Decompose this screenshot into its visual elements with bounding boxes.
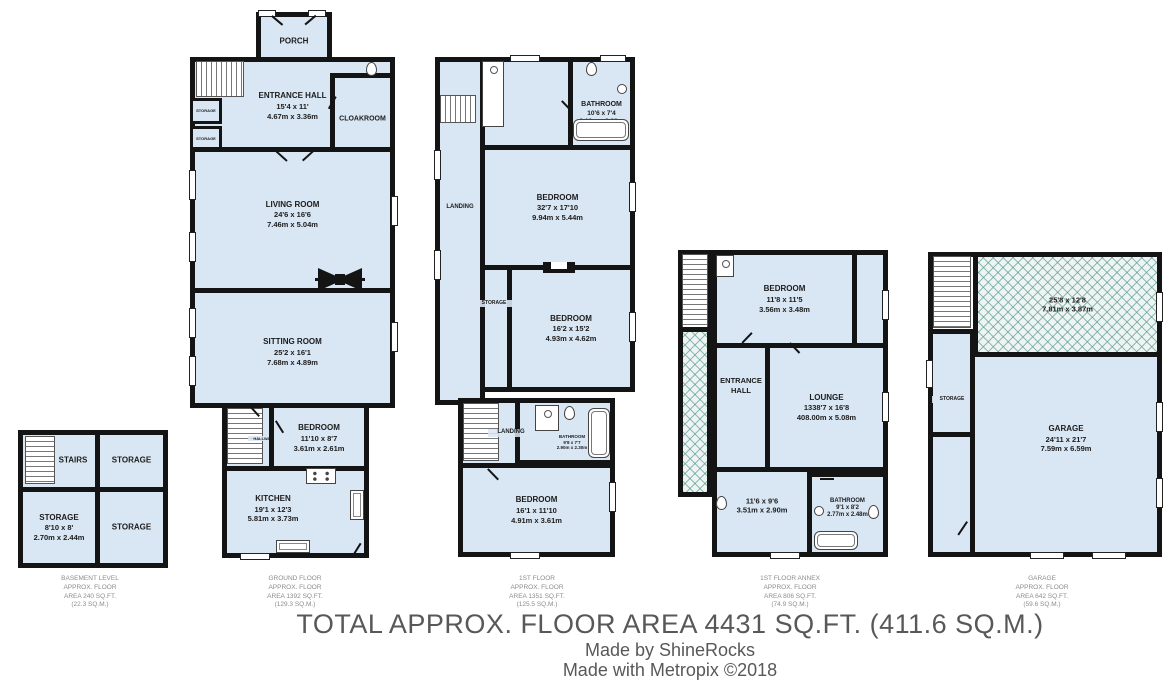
room-dims-ft: 11'8 x 11'5 (717, 295, 852, 305)
window-marker (391, 322, 398, 352)
gr-garage: GARAGE 24'11 x 21'7 7.59m x 6.59m (970, 352, 1162, 557)
window-marker (882, 392, 889, 422)
ff-storage-label: STORAGE (470, 300, 518, 307)
room-name: BATHROOM (812, 497, 883, 505)
window-marker (240, 553, 270, 560)
caption-line: APPROX. FLOOR (477, 584, 597, 593)
window-marker (510, 55, 540, 62)
room-dims-m: 408.00m x 5.08m (770, 413, 883, 423)
room-dims-ft: 25'8 x 12'8 (978, 295, 1157, 305)
room-name: BATHROOM (573, 100, 630, 109)
window-marker (308, 10, 326, 17)
room-dims-m: 3.51m x 2.90m (717, 506, 807, 516)
room-dims-m: 4.91m x 3.61m (463, 515, 610, 525)
total-floor-area-text: TOTAL APPROX. FLOOR AREA 4431 SQ.FT. (41… (170, 609, 1170, 640)
room-dims-ft: 16'2 x 15'2 (512, 324, 630, 334)
caption-line: APPROX. FLOOR (982, 584, 1102, 593)
window-marker (189, 308, 196, 338)
room-dims-m: 5.81m x 3.73m (182, 514, 364, 524)
gf-porch: PORCH (256, 12, 332, 62)
ax-entrance-hall: ENTRANCE HALL (712, 343, 770, 472)
caption-line: AREA 240 SQ.FT. (30, 593, 150, 602)
room-dims-ft: 1338'7 x 16'8 (770, 403, 883, 413)
room-dims-m: 7.81m x 3.87m (978, 305, 1157, 315)
toilet-icon (366, 62, 377, 76)
stove-icon (306, 468, 336, 484)
window-marker (1092, 552, 1126, 559)
room-dims-ft: 24'11 x 21'7 (975, 435, 1157, 445)
room-dims-m: 7.68m x 4.89m (195, 358, 390, 368)
ff-bedroom-big: BEDROOM 32'7 x 17'10 9.94m x 5.44m (480, 145, 635, 270)
window-marker (510, 552, 540, 559)
caption-line: AREA 806 SQ.FT. (730, 593, 850, 602)
room-dims-ft: 11'6 x 9'6 (717, 496, 807, 506)
room-name: BEDROOM (717, 284, 852, 295)
shower-icon (482, 61, 504, 127)
ax-room-bottom-left: 11'6 x 9'6 3.51m x 2.90m (712, 467, 812, 557)
bathtub-icon (573, 119, 629, 141)
window-marker (629, 312, 636, 342)
stairs-icon (682, 254, 708, 328)
gr-loft-hatched-area: 25'8 x 12'8 7.81m x 3.87m (973, 252, 1162, 357)
room-name: BEDROOM (274, 423, 364, 434)
room-name: ENTRANCE HALL (717, 376, 765, 396)
window-marker (926, 360, 933, 388)
caption-line: APPROX. FLOOR (235, 584, 355, 593)
window-marker (770, 552, 800, 559)
caption-line: AREA 1351 SQ.FT. (477, 593, 597, 602)
chimney-breast (543, 262, 575, 273)
caption-line: AREA 642 SQ.FT. (982, 593, 1102, 602)
room-dims-m: 7.59m x 6.59m (975, 444, 1157, 454)
stairs-icon (933, 256, 971, 328)
room-name: BEDROOM (463, 495, 610, 506)
room-name: SITTING ROOM (195, 337, 390, 348)
room-name: LOUNGE (770, 392, 883, 403)
room-dims-m: 3.61m x 2.61m (274, 443, 364, 453)
shower-icon (535, 405, 559, 431)
gf-sitting-room: SITTING ROOM 25'2 x 16'1 7.68m x 4.89m (190, 288, 395, 408)
basement-storage-bottom-left: STORAGE 8'10 x 8' 2.70m x 2.44m (18, 487, 100, 568)
ax-balcony-hatched-area (678, 327, 712, 497)
made-by-text: Made by ShineRocks (170, 640, 1170, 661)
toilet-icon (564, 406, 575, 420)
gf-bedroom: BEDROOM 11'10 x 8'7 3.61m x 2.61m (269, 403, 369, 473)
ax-lounge: LOUNGE 1338'7 x 16'8 408.00m x 5.08m (765, 343, 888, 472)
gr-storage (928, 329, 975, 437)
room-dims-ft: 32'7 x 17'10 (485, 203, 630, 213)
window-marker (391, 196, 398, 226)
room-dims-ft: 10'6 x 7'4 (573, 110, 630, 118)
sink-icon (814, 506, 824, 516)
ff-bedroom-mid: BEDROOM 16'2 x 15'2 4.93m x 4.62m (507, 265, 635, 392)
window-marker (882, 290, 889, 320)
gr-lower-left-cell (928, 432, 975, 557)
room-name: KITCHEN (182, 494, 364, 505)
room-name: GARAGE (975, 424, 1157, 435)
toilet-icon (868, 505, 879, 519)
room-name: STORAGE (23, 512, 95, 523)
floorplan-canvas: STAIRS STORAGE STORAGE 8'10 x 8' 2.70m x… (0, 0, 1170, 683)
caption-line: APPROX. FLOOR (30, 584, 150, 593)
room-name: STAIRS (51, 456, 95, 467)
ff-landing-label: LANDING (433, 204, 487, 212)
stairs-icon (25, 436, 55, 484)
caption-ground-floor: GROUND FLOOR APPROX. FLOOR AREA 1392 SQ.… (235, 575, 355, 610)
room-dims-ft: 11'10 x 8'7 (274, 434, 364, 444)
window-marker (629, 182, 636, 212)
room-name: CLOAKROOM (335, 115, 390, 124)
caption-first-floor: 1ST FLOOR APPROX. FLOOR AREA 1351 SQ.FT.… (477, 575, 597, 610)
basement-storage-top-right: STORAGE (95, 430, 168, 492)
caption-line: 1ST FLOOR (477, 575, 597, 584)
room-name: PORCH (261, 36, 327, 47)
door-marker (820, 478, 834, 480)
room-dims-ft: 19'1 x 12'3 (182, 504, 364, 514)
gf-storage-closet-1: STORAGE (190, 98, 222, 124)
caption-line: GARAGE (982, 575, 1102, 584)
window-marker (189, 232, 196, 262)
ff-landing2-label: LANDING (488, 429, 534, 437)
window-marker (1030, 552, 1064, 559)
shower-icon (716, 255, 734, 277)
caption-line: AREA 1392 SQ.FT. (235, 593, 355, 602)
room-name: BEDROOM (485, 192, 630, 203)
room-dims-m: 7.46m x 5.04m (195, 220, 390, 230)
toilet-icon (716, 496, 727, 510)
room-dims-m: 9.94m x 5.44m (485, 213, 630, 223)
caption-line: APPROX. FLOOR (730, 584, 850, 593)
window-marker (1156, 292, 1163, 322)
kitchen-sink-icon (350, 490, 364, 520)
room-name: LIVING ROOM (195, 199, 390, 210)
gf-cloakroom: CLOAKROOM (330, 73, 395, 152)
gr-storage-label: STORAGE (932, 396, 972, 403)
ff-bedroom-bottom: BEDROOM 16'1 x 11'10 4.91m x 3.61m (458, 463, 615, 557)
toilet-icon (586, 62, 597, 76)
caption-line: 1ST FLOOR ANNEX (730, 575, 850, 584)
window-marker (1156, 478, 1163, 508)
window-marker (434, 150, 441, 180)
room-dims-ft: 8'10 x 8' (23, 523, 95, 533)
caption-basement: BASEMENT LEVEL APPROX. FLOOR AREA 240 SQ… (30, 575, 150, 610)
room-dims-ft: 24'6 x 16'6 (195, 210, 390, 220)
room-dims-m: 2.90m x 2.30m (546, 445, 598, 451)
room-dims-ft: 25'2 x 16'1 (195, 348, 390, 358)
room-name: STORAGE (193, 108, 219, 113)
window-marker (1156, 402, 1163, 432)
room-name: BEDROOM (512, 313, 630, 324)
room-name: STORAGE (193, 136, 219, 141)
window-marker (434, 250, 441, 280)
room-dims-ft: 16'1 x 11'10 (463, 506, 610, 516)
room-dims-m: 4.93m x 4.62m (512, 334, 630, 344)
caption-annex: 1ST FLOOR ANNEX APPROX. FLOOR AREA 806 S… (730, 575, 850, 610)
fireplace-icon (315, 266, 365, 294)
ff-bathroom-small-label: BATHROOM 9'8 x 7'7 2.90m x 2.30m (546, 434, 598, 451)
window-marker (609, 482, 616, 512)
stairs-icon (196, 61, 244, 97)
made-with-text: Made with Metropix ©2018 (170, 660, 1170, 681)
bathtub-icon (814, 531, 858, 550)
window-marker (189, 356, 196, 386)
caption-line: (22.3 SQ.M.) (30, 601, 150, 610)
kitchen-sink-icon (276, 540, 310, 553)
caption-garage: GARAGE APPROX. FLOOR AREA 642 SQ.FT. (59… (982, 575, 1102, 610)
caption-line: GROUND FLOOR (235, 575, 355, 584)
basement-storage-bottom-right: STORAGE (95, 487, 168, 568)
sink-icon (617, 84, 627, 94)
window-marker (600, 55, 626, 62)
window-marker (189, 170, 196, 200)
room-dims-m: 2.70m x 2.44m (23, 533, 95, 543)
room-dims-m: 3.56m x 3.48m (717, 304, 852, 314)
caption-line: BASEMENT LEVEL (30, 575, 150, 584)
room-name: STORAGE (100, 456, 163, 467)
room-name: STORAGE (100, 522, 163, 533)
stairs-icon (440, 95, 476, 123)
